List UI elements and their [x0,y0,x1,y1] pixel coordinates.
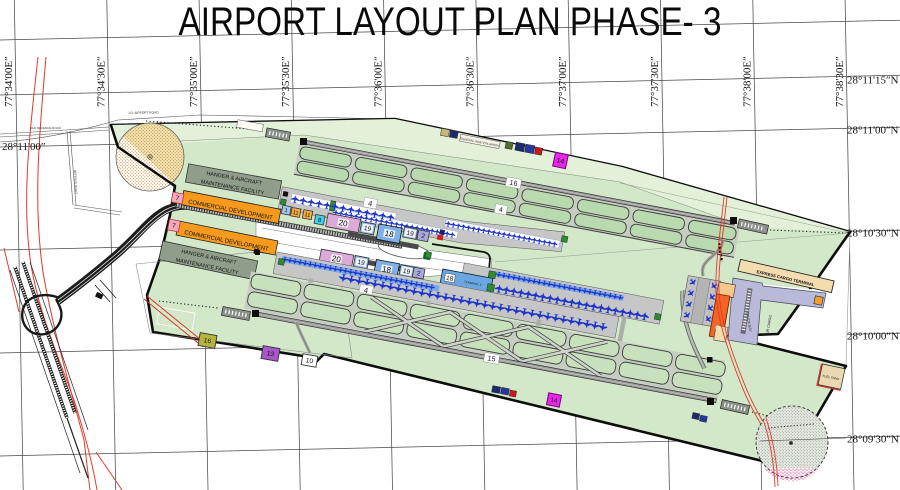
svg-text:16: 16 [509,178,519,188]
svg-text:77°34'30E″: 77°34'30E″ [96,56,108,107]
svg-text:77°35'00E″: 77°35'00E″ [188,56,200,107]
svg-text:77°38'30E″: 77°38'30E″ [834,56,846,107]
svg-text:77°35'30E″: 77°35'30E″ [280,56,292,107]
svg-text:28°10'00″N: 28°10'00″N [847,331,899,343]
svg-text:28°11'15″N: 28°11'15″N [847,75,899,87]
svg-text:77°36'30E″: 77°36'30E″ [465,56,477,107]
svg-text:77°37'00E″: 77°37'00E″ [557,56,569,107]
svg-text:OLD DEFENCE ROAD: OLD DEFENCE ROAD [30,126,62,130]
svg-text:AIRPORT LAYOUT PLAN PHASE- 3: AIRPORT LAYOUT PLAN PHASE- 3 [179,0,722,44]
svg-text:11: 11 [292,210,299,217]
svg-text:J.R. AIRPORT ROAD: J.R. AIRPORT ROAD [128,110,159,115]
svg-text:28°09'30″N: 28°09'30″N [847,434,899,446]
svg-text:28°11'00″: 28°11'00″ [2,141,46,153]
svg-text:28°11'00″N: 28°11'00″N [847,125,899,137]
svg-text:77°34'00E″: 77°34'00E″ [3,56,15,107]
svg-text:77°37'30E″: 77°37'30E″ [649,56,661,107]
svg-text:77°38'00E″: 77°38'00E″ [742,56,754,107]
svg-text:15: 15 [487,353,497,363]
svg-text:77°36'00E″: 77°36'00E″ [372,56,384,107]
svg-text:11: 11 [304,212,311,219]
svg-text:28°10'30″N: 28°10'30″N [847,228,899,240]
